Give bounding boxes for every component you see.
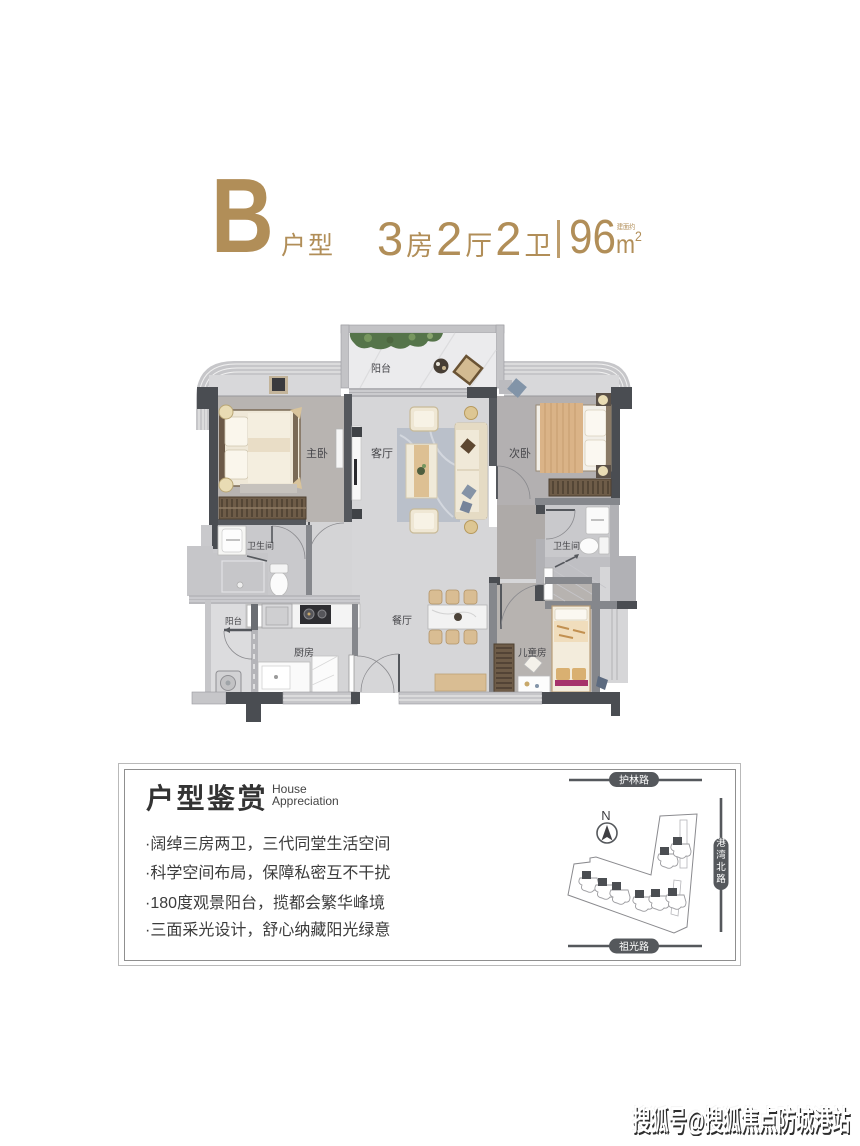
svg-text:港: 港 (716, 837, 726, 849)
svg-text:主卧: 主卧 (306, 447, 328, 460)
svg-text:阳台: 阳台 (225, 616, 242, 626)
svg-text:北: 北 (716, 862, 726, 873)
svg-text:儿童房: 儿童房 (518, 647, 547, 659)
svg-text:祖光路: 祖光路 (619, 940, 649, 953)
svg-text:阳台: 阳台 (371, 362, 391, 375)
svg-text:次卧: 次卧 (509, 446, 531, 460)
svg-text:卫生间: 卫生间 (553, 540, 580, 551)
svg-text:护林路: 护林路 (619, 774, 649, 787)
svg-text:餐厅: 餐厅 (392, 614, 412, 627)
svg-text:厨房: 厨房 (294, 646, 314, 659)
svg-text:客厅: 客厅 (371, 446, 393, 460)
svg-text:卫生间: 卫生间 (247, 540, 274, 551)
svg-text:湾: 湾 (716, 849, 726, 861)
svg-text:路: 路 (716, 873, 726, 885)
svg-text:N: N (601, 808, 610, 823)
